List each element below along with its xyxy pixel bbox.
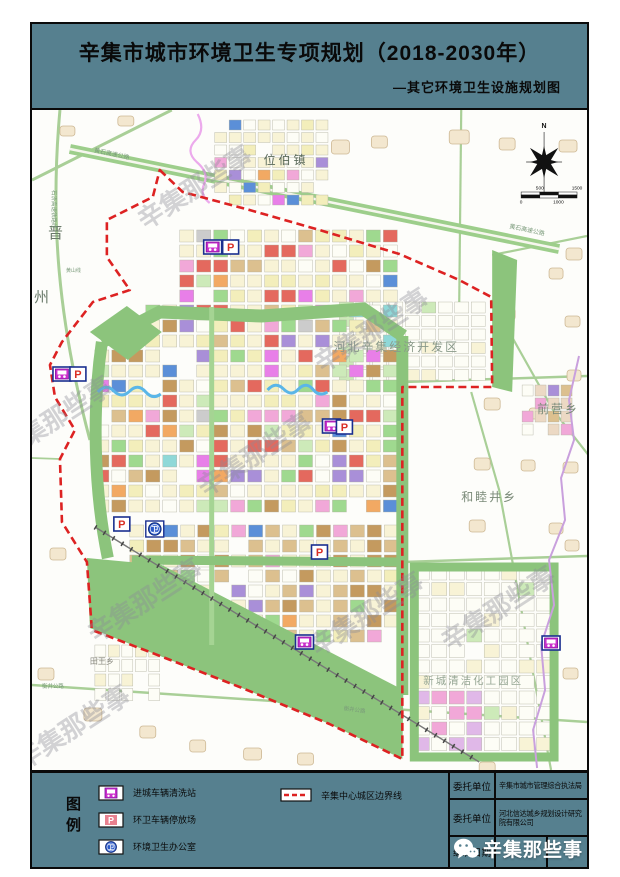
svg-text:P: P (108, 815, 114, 825)
plan-sheet: 辛集市城市环境卫生专项规划（2018-2030年） —其它环境卫生设施规划图 P (30, 22, 589, 869)
legend-label: 辛集中心城区边界线 (321, 789, 402, 802)
wash-station-icon (204, 240, 222, 254)
svg-text:1500: 1500 (572, 185, 583, 191)
label-weibozhen: 位伯镇 (264, 152, 309, 167)
parking-lot-icon (223, 240, 239, 254)
legend-label: 环境卫生办公室 (133, 840, 196, 853)
map-area: P 卫 (32, 110, 587, 770)
wechat-icon (453, 837, 479, 861)
label-road-hengjing-1: 衡井公路 (42, 682, 64, 690)
titleblock-value: 河北信达城乡规划设计研究院有限公司 (496, 800, 587, 835)
legend-item-wash: 进城车辆清洗站 (98, 779, 196, 806)
table-row: 委托单位 辛集市城市管理综合执法局 (450, 773, 587, 800)
page-title: 辛集市城市环境卫生专项规划（2018-2030年） (32, 37, 587, 67)
label-zhou: 州 (34, 289, 49, 306)
sanitation-office-legend-icon: 卫 (98, 839, 124, 855)
label-huagongyuanqu: 新城清洁化工园区 (423, 674, 523, 687)
legend-label: 进城车辆清洗站 (133, 786, 196, 799)
titleblock-label: 委托单位 (450, 800, 496, 835)
label-tianwangxiang: 田王乡 (90, 657, 114, 666)
titleblock-label: 委托单位 (450, 773, 496, 798)
label-road-huangshan: 黄山线 (66, 267, 81, 274)
wash-station-legend-icon (98, 785, 124, 801)
wash-station-icon (296, 635, 314, 649)
parking-lot-icon (336, 420, 352, 434)
label-hemujingxiang: 和睦井乡 (461, 490, 517, 504)
legend-item-parking: P 环卫车辆停放场 (98, 806, 196, 833)
parking-lot-legend-icon: P (98, 812, 124, 828)
parking-lot-icon (70, 367, 86, 381)
north-label: N (542, 123, 547, 130)
boundary-line-legend-icon (280, 788, 312, 802)
label-road-rail: 石济高速铁路线 (50, 190, 58, 229)
legend-item-office: 卫 环境卫生办公室 (98, 833, 196, 860)
parking-lot-icon (114, 517, 130, 531)
svg-text:1000: 1000 (553, 199, 564, 205)
wash-station-icon (53, 367, 71, 381)
titleblock-value: 辛集市城市管理综合执法局 (496, 773, 587, 798)
publisher-logo: 辛集那些事 (453, 835, 583, 862)
sanitation-office-icon (146, 521, 164, 537)
page-subtitle: —其它环境卫生设施规划图 (393, 77, 561, 96)
table-row: 委托单位 河北信达城乡规划设计研究院有限公司 (450, 800, 587, 837)
legend-items: 进城车辆清洗站 P 环卫车辆停放场 卫 环境卫生办公室 (98, 779, 196, 860)
svg-text:0: 0 (520, 199, 523, 205)
legend-item-boundary: 辛集中心城区边界线 (280, 788, 402, 802)
legend-title: 图例 (66, 794, 83, 836)
header: 辛集市城市环境卫生专项规划（2018-2030年） —其它环境卫生设施规划图 (32, 24, 587, 110)
publisher-name: 辛集那些事 (483, 835, 583, 862)
map-canvas: P 卫 (32, 110, 587, 770)
legend-label: 环卫车辆停放场 (133, 813, 196, 826)
svg-text:500: 500 (536, 185, 544, 191)
label-qianyingxiang: 前营乡 (537, 401, 579, 416)
wash-station-icon (542, 636, 560, 650)
legend-panel: 图例 进城车辆清洗站 P 环卫车辆停放场 (32, 770, 587, 867)
parking-lot-icon (311, 545, 327, 559)
svg-text:卫: 卫 (108, 843, 115, 851)
